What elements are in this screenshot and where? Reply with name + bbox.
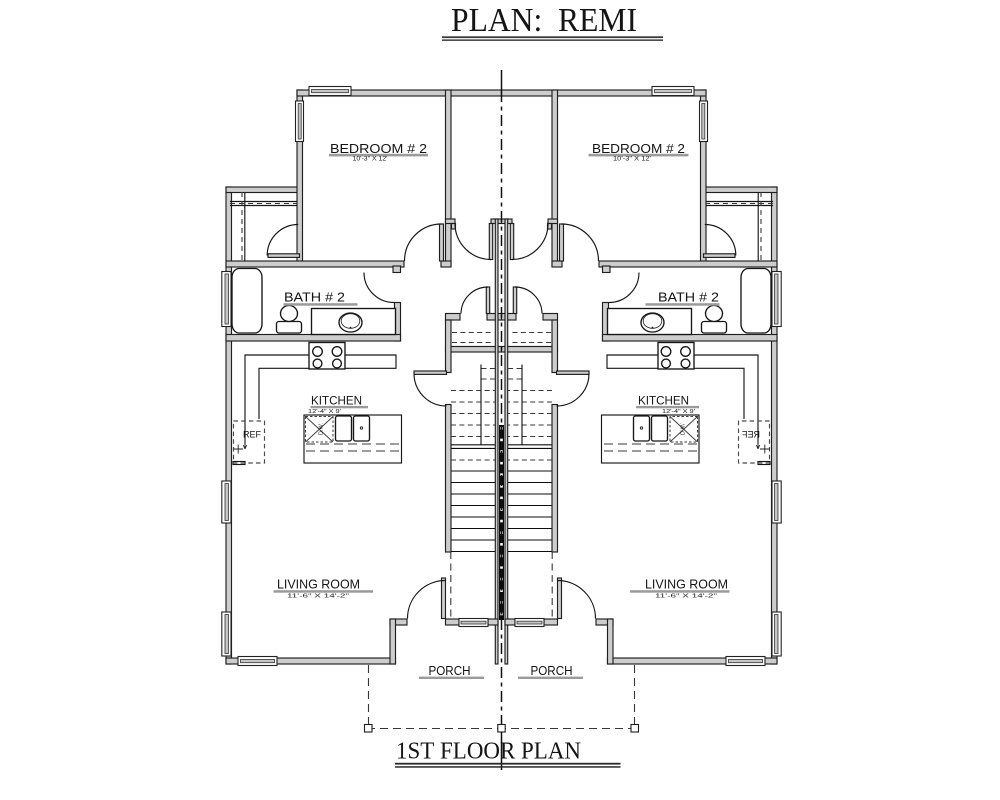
svg-text:1ST FLOOR PLAN: 1ST FLOOR PLAN [396,738,581,765]
svg-text:PLAN: REMI: PLAN: REMI [451,2,637,39]
svg-text:LIVING ROOM: LIVING ROOM [645,577,728,592]
svg-text:BATH # 2: BATH # 2 [284,290,345,305]
svg-text:BATH # 2: BATH # 2 [658,290,719,305]
svg-text:PORCH: PORCH [429,664,471,678]
svg-text:12'-4" X 9': 12'-4" X 9' [662,409,695,415]
svg-text:12'-4" X 9': 12'-4" X 9' [308,409,341,415]
svg-text:PORCH: PORCH [531,664,573,678]
svg-text:11'-6" X 14'-2": 11'-6" X 14'-2" [287,593,349,599]
svg-text:LIVING ROOM: LIVING ROOM [277,577,360,592]
svg-text:BEDROOM # 2: BEDROOM # 2 [330,141,427,156]
svg-text:10'-3" X 12': 10'-3" X 12' [613,156,651,163]
svg-text:10'-3" X 12': 10'-3" X 12' [353,156,388,163]
svg-text:KITCHEN: KITCHEN [638,393,689,407]
svg-text:11'-6" X 14'-2": 11'-6" X 14'-2" [655,593,717,599]
svg-text:KITCHEN: KITCHEN [311,393,362,407]
svg-text:BEDROOM # 2: BEDROOM # 2 [592,141,685,156]
